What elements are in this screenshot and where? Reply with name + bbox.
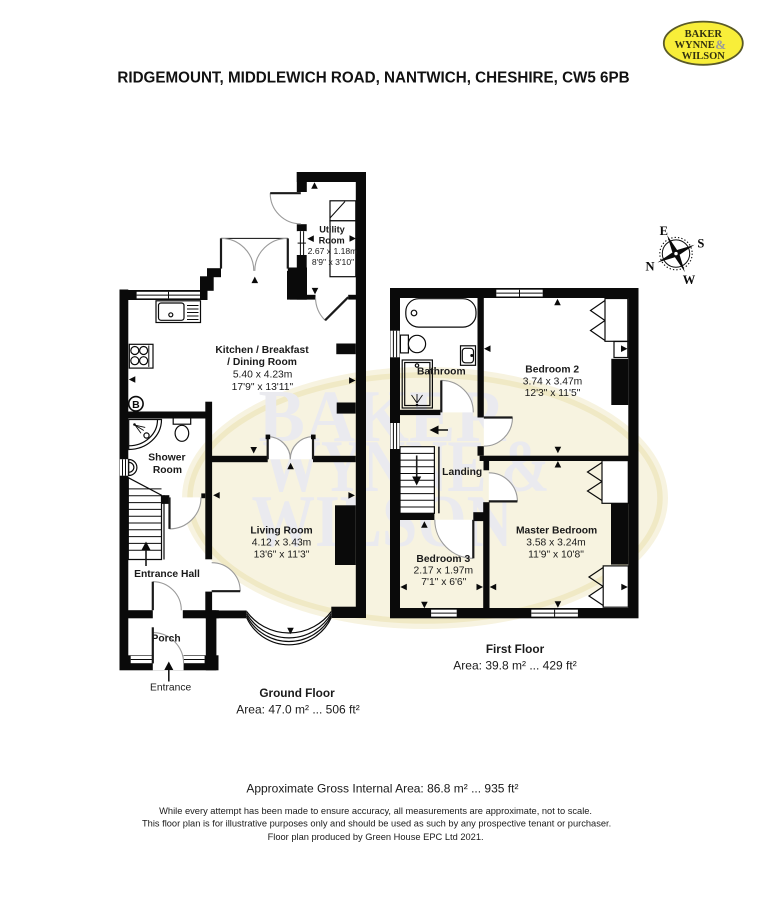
svg-text:WYNNE&: WYNNE& xyxy=(674,37,726,52)
svg-text:Area: 47.0 m² ... 506 ft²: Area: 47.0 m² ... 506 ft² xyxy=(236,703,359,717)
svg-text:Porch: Porch xyxy=(152,633,181,644)
svg-text:Room: Room xyxy=(319,235,345,245)
svg-text:Landing: Landing xyxy=(442,467,482,478)
svg-text:Entrance Hall: Entrance Hall xyxy=(134,569,200,580)
svg-text:/ Dining Room: / Dining Room xyxy=(227,357,297,368)
svg-text:17'9" x 13'11": 17'9" x 13'11" xyxy=(232,382,294,393)
svg-text:Master Bedroom: Master Bedroom xyxy=(516,526,597,537)
svg-text:S: S xyxy=(697,237,704,251)
svg-text:2.17 x 1.97m: 2.17 x 1.97m xyxy=(414,566,474,577)
svg-text:5.40 x 4.23m: 5.40 x 4.23m xyxy=(233,370,293,381)
svg-text:N: N xyxy=(645,259,654,273)
svg-text:13'6" x 11'3": 13'6" x 11'3" xyxy=(254,549,310,560)
svg-text:W: W xyxy=(683,273,696,287)
svg-text:Approximate Gross Internal Are: Approximate Gross Internal Area: 86.8 m²… xyxy=(246,782,518,796)
svg-text:Kitchen / Breakfast: Kitchen / Breakfast xyxy=(215,345,309,356)
svg-text:Shower: Shower xyxy=(148,452,185,463)
svg-text:Room: Room xyxy=(153,465,182,476)
svg-text:Ground Floor: Ground Floor xyxy=(259,686,335,700)
svg-text:11'9" x 10'8": 11'9" x 10'8" xyxy=(528,549,584,560)
svg-text:Bedroom 2: Bedroom 2 xyxy=(525,365,579,376)
svg-text:Area: 39.8 m² ... 429 ft²: Area: 39.8 m² ... 429 ft² xyxy=(453,659,576,673)
svg-text:B: B xyxy=(132,399,140,411)
svg-text:Floor plan produced by Green H: Floor plan produced by Green House EPC L… xyxy=(268,832,484,842)
svg-text:3.74 x 3.47m: 3.74 x 3.47m xyxy=(523,376,583,387)
svg-text:Utility: Utility xyxy=(319,225,345,235)
svg-text:This floor plan is for illustr: This floor plan is for illustrative purp… xyxy=(142,819,611,829)
svg-text:First Floor: First Floor xyxy=(486,642,545,656)
svg-text:RIDGEMOUNT, MIDDLEWICH ROAD, N: RIDGEMOUNT, MIDDLEWICH ROAD, NANTWICH, C… xyxy=(117,69,629,86)
svg-text:3.58 x 3.24m: 3.58 x 3.24m xyxy=(526,538,586,549)
svg-text:Bathroom: Bathroom xyxy=(417,367,466,378)
svg-text:Bedroom 3: Bedroom 3 xyxy=(416,554,470,565)
svg-text:WILSON: WILSON xyxy=(682,51,726,62)
svg-text:Living Room: Living Room xyxy=(250,526,312,537)
svg-text:12'3" x 11'5": 12'3" x 11'5" xyxy=(525,388,581,399)
svg-text:4.12 x 3.43m: 4.12 x 3.43m xyxy=(252,538,312,549)
svg-text:Entrance: Entrance xyxy=(150,683,191,694)
svg-text:E: E xyxy=(660,224,668,238)
svg-text:2.67 x 1.18m: 2.67 x 1.18m xyxy=(308,246,358,256)
svg-text:8'9" x 3'10": 8'9" x 3'10" xyxy=(312,257,354,267)
svg-text:While every attempt has been m: While every attempt has been made to ens… xyxy=(159,806,592,816)
svg-text:7'1" x 6'6": 7'1" x 6'6" xyxy=(421,577,466,588)
